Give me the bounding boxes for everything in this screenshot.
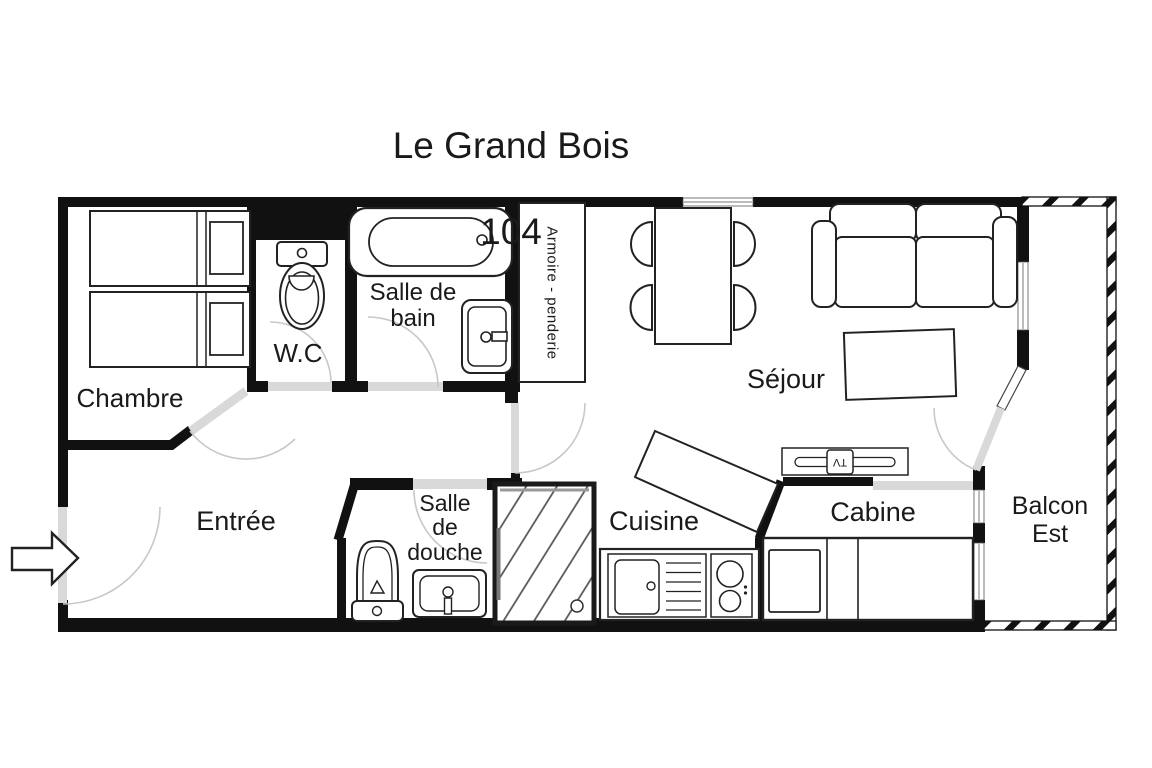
room-label-wc: W.C bbox=[256, 338, 340, 369]
room-label-chambre: Chambre bbox=[55, 383, 205, 414]
toilet-icon bbox=[277, 242, 327, 329]
room-label-cuisine: Cuisine bbox=[582, 506, 726, 537]
room-label-sejour: Séjour bbox=[714, 364, 858, 395]
single-bed-1-icon bbox=[90, 211, 250, 286]
room-label-balcon-est: Balcon Est bbox=[986, 493, 1114, 548]
room-label-salle-de-bain: Salle de bain bbox=[351, 280, 475, 333]
room-label-cabine: Cabine bbox=[801, 497, 945, 528]
room-label-entree: Entrée bbox=[164, 506, 308, 537]
room-label-salle-de-douche: Salle de douche bbox=[393, 491, 497, 564]
cabin-bed-icon bbox=[763, 538, 973, 620]
single-bed-2-icon bbox=[90, 292, 250, 367]
entrance-arrow-icon bbox=[12, 533, 78, 584]
floor-plan-page: Le Grand Bois 104 Chambre W.C Salle de b… bbox=[0, 0, 1152, 768]
coffee-table-icon bbox=[844, 329, 956, 400]
plan-title-line2: 104 bbox=[326, 211, 696, 254]
shower-sink-icon bbox=[413, 570, 486, 617]
plan-title: Le Grand Bois 104 bbox=[326, 82, 696, 297]
shower-stall-icon bbox=[495, 484, 594, 623]
plan-title-line1: Le Grand Bois bbox=[326, 125, 696, 168]
label-armoire-penderie: Armoire - penderie bbox=[544, 226, 561, 359]
sofa-icon bbox=[812, 204, 1017, 307]
tv-label: TV bbox=[833, 456, 847, 468]
kitchen-counter-icon bbox=[600, 549, 759, 620]
